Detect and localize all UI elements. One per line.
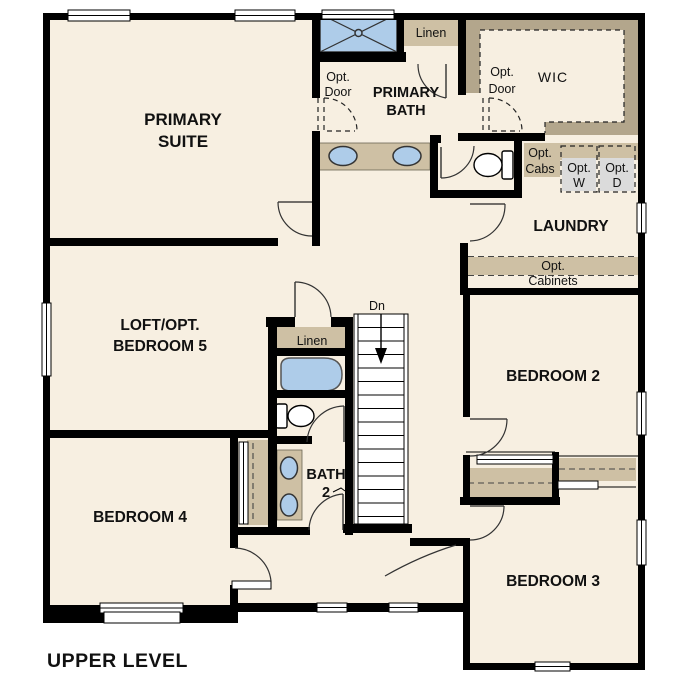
bath2-toilet — [276, 404, 314, 428]
opt-cabinets-label-2: Cabinets — [528, 274, 577, 288]
opt-dryer-label-1: Opt. — [605, 161, 629, 175]
wic-label: WIC — [538, 69, 568, 85]
window — [637, 203, 646, 233]
opt-door-wic-label-2: Door — [488, 82, 515, 96]
opt-cabs-label-1: Opt. — [528, 146, 552, 160]
window — [317, 603, 347, 612]
primary-bath-label-2: BATH — [386, 103, 425, 119]
bath2-label-1: BATH — [306, 467, 345, 483]
bathtub — [281, 358, 342, 391]
stairs-down-label: Dn — [369, 299, 385, 313]
bedroom4-closet — [247, 440, 268, 525]
window — [42, 303, 51, 376]
linen-hall-label: Linen — [297, 334, 328, 348]
opt-door-wic-label-1: Opt. — [490, 65, 514, 79]
window — [637, 520, 646, 565]
window — [389, 603, 418, 612]
window — [535, 662, 570, 671]
opt-door-bath-label-2: Door — [324, 85, 351, 99]
bedroom3-floor — [463, 540, 638, 663]
opt-cabinets-label-1: Opt. — [541, 259, 565, 273]
window — [100, 603, 183, 623]
opt-dryer-label-2: D — [612, 176, 621, 190]
opt-washer-label-1: Opt. — [567, 161, 591, 175]
bedroom4-label: BEDROOM 4 — [93, 509, 187, 526]
bath2-label-2: 2 — [322, 485, 330, 501]
plan-title: UPPER LEVEL — [47, 650, 188, 672]
staircase — [354, 314, 408, 524]
window — [235, 10, 295, 21]
primary-suite-label-2: SUITE — [158, 132, 208, 151]
bedroom3-label: BEDROOM 3 — [506, 573, 600, 590]
laundry-label: LAUNDRY — [533, 218, 609, 235]
primary-bath-label-1: PRIMARY — [373, 85, 440, 101]
primary-toilet — [474, 151, 513, 179]
bedroom3-closet-slider — [558, 481, 598, 489]
floor-plan-page: PRIMARY SUITE PRIMARY BATH Linen Opt. Do… — [0, 0, 687, 687]
primary-sink-right — [393, 147, 421, 166]
opt-door-bath-label-1: Opt. — [326, 70, 350, 84]
opt-cabs-label-2: Cabs — [525, 162, 554, 176]
upper-level-floor-plan: PRIMARY SUITE PRIMARY BATH Linen Opt. Do… — [0, 0, 687, 687]
bath2-sink-bottom — [281, 494, 298, 516]
primary-sink-left — [329, 147, 357, 166]
window — [322, 10, 394, 19]
primary-suite-label-1: PRIMARY — [144, 110, 222, 129]
window — [68, 10, 130, 21]
window — [637, 392, 646, 435]
loft-label-2: BEDROOM 5 — [113, 338, 207, 355]
loft-label-1: LOFT/OPT. — [120, 317, 199, 334]
opt-washer-label-2: W — [573, 176, 585, 190]
shower-drain — [355, 30, 362, 37]
bath2-sink-top — [281, 457, 298, 479]
linen-upper-label: Linen — [416, 26, 447, 40]
bedroom2-label: BEDROOM 2 — [506, 368, 600, 385]
